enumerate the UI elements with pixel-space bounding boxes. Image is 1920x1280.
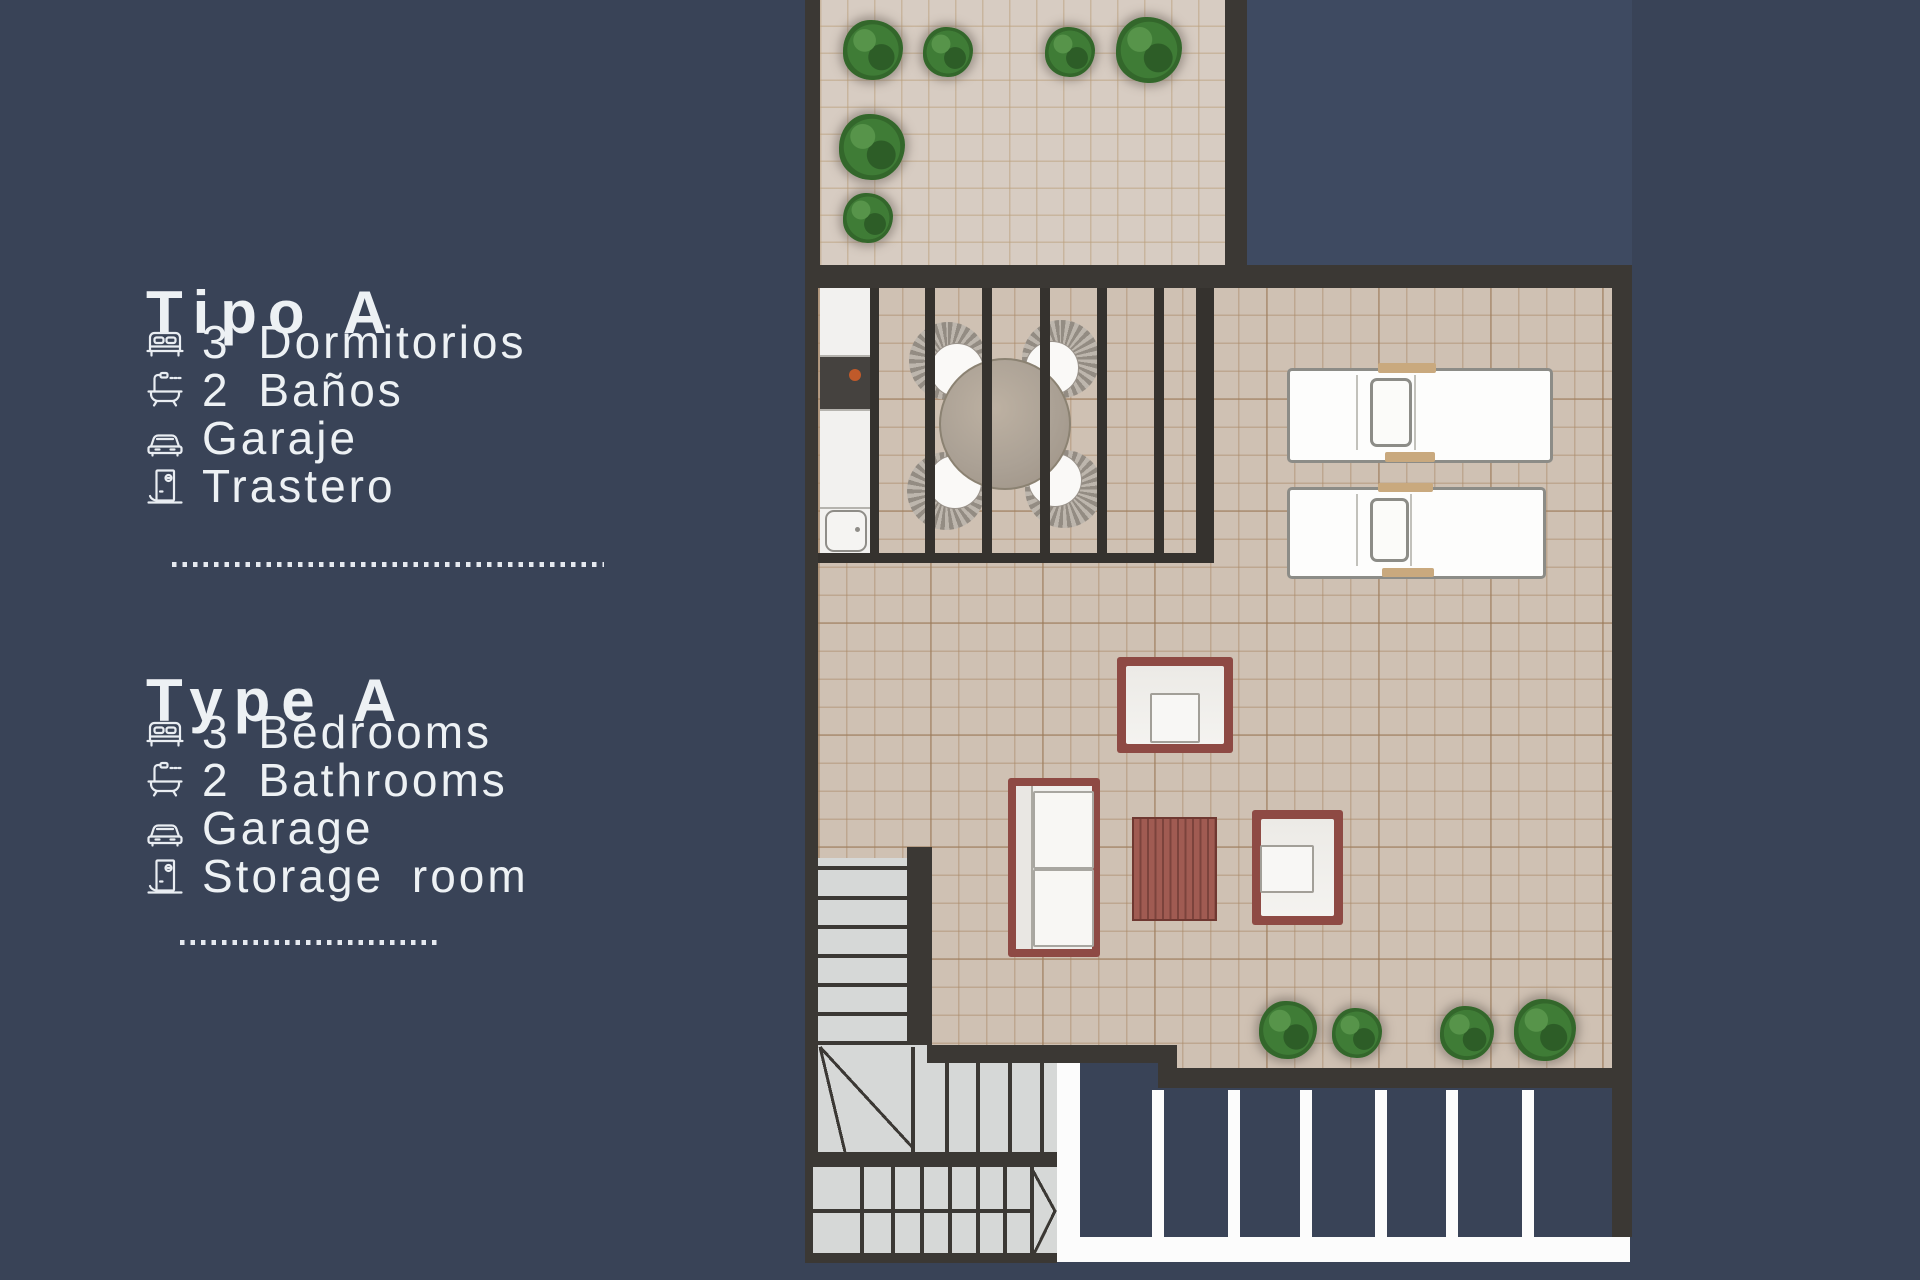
sun-lounger xyxy=(1287,368,1553,463)
lounger-fold-line xyxy=(1414,375,1416,450)
burner-knob xyxy=(849,369,861,381)
stove xyxy=(820,357,872,409)
pergola-slat xyxy=(1097,288,1107,563)
armchair-cushion xyxy=(1150,693,1200,743)
deck-joist xyxy=(1152,1090,1164,1237)
lounger-fold-line xyxy=(1356,375,1358,450)
wall-segment xyxy=(1225,0,1247,288)
wood-armrest xyxy=(1378,483,1433,492)
wall-segment xyxy=(1175,1068,1632,1088)
plant xyxy=(1259,1001,1317,1059)
plant xyxy=(1116,17,1182,83)
lounger-fold-line xyxy=(1356,494,1358,566)
sun-lounger xyxy=(1287,487,1546,579)
lounger-fold-line xyxy=(1410,494,1412,566)
counter-divider xyxy=(820,409,872,411)
armchair-cushion xyxy=(1260,845,1314,893)
coffee-table xyxy=(1132,817,1217,921)
pergola-slat xyxy=(1040,288,1050,563)
wood-armrest xyxy=(1382,568,1434,577)
plant xyxy=(1514,999,1576,1061)
plant xyxy=(923,27,973,77)
courtyard-shade xyxy=(1247,0,1632,265)
wall-segment xyxy=(805,265,1632,288)
deck-front-beam xyxy=(1057,1237,1630,1262)
lounger-headrest xyxy=(1370,498,1409,562)
wood-armrest xyxy=(1378,363,1436,373)
plant xyxy=(843,193,893,243)
pergola-slat xyxy=(925,288,935,563)
sink-drain xyxy=(855,527,860,532)
plant xyxy=(839,114,905,180)
deck-edge-beam xyxy=(1057,1063,1080,1262)
plant xyxy=(843,20,903,80)
armchair xyxy=(1252,810,1343,925)
armchair xyxy=(1117,657,1233,753)
pergola-end-beam xyxy=(1196,288,1214,563)
dining-table xyxy=(939,358,1071,490)
plant xyxy=(1440,1006,1494,1060)
lounger-headrest xyxy=(1370,378,1412,447)
deck-joist xyxy=(1300,1090,1312,1237)
wall-segment xyxy=(805,0,820,288)
plant xyxy=(1045,27,1095,77)
sink xyxy=(825,510,867,552)
deck-joist xyxy=(1375,1090,1387,1237)
counter-divider xyxy=(820,507,872,509)
plant xyxy=(1332,1008,1382,1058)
pergola-slat xyxy=(982,288,992,563)
wood-armrest xyxy=(1385,452,1435,462)
wall-segment xyxy=(805,288,818,1152)
deck-joist xyxy=(1446,1090,1458,1237)
pergola-slat xyxy=(870,288,879,563)
deck-joist xyxy=(1522,1090,1534,1237)
pergola-slat xyxy=(1154,288,1164,563)
wall-segment xyxy=(927,1045,1177,1063)
deck-joist xyxy=(1228,1090,1240,1237)
kitchen-counter xyxy=(820,288,872,553)
floor-plan xyxy=(0,0,1920,1280)
pergola-bottom-beam xyxy=(818,553,1214,563)
wall-segment xyxy=(1612,265,1632,1237)
floor-plan-poster: Tipo A 3 Dormitorios 2 Baños Garaje Tras… xyxy=(0,0,1920,1280)
